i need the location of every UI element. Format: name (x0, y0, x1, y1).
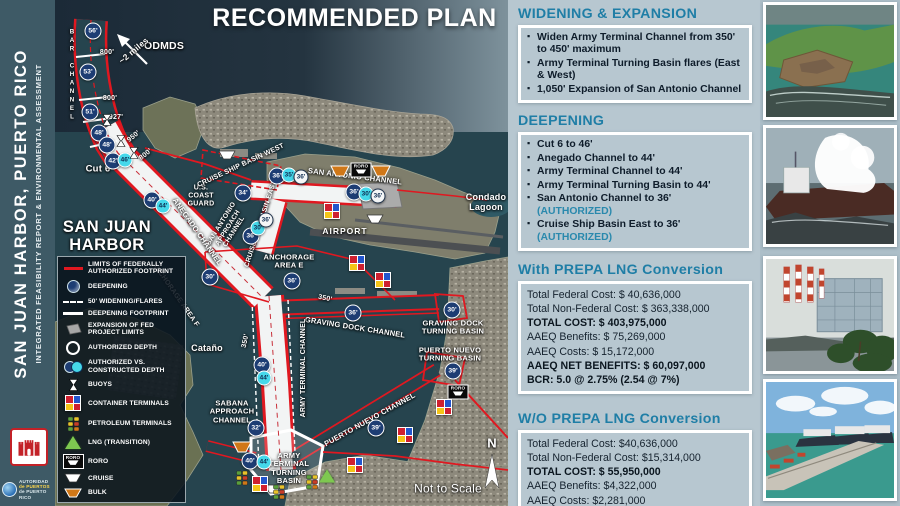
container-terminal-icon (375, 272, 391, 288)
roro-icon: RORO (61, 454, 85, 469)
cost-line: AAEQ Costs: $ 15,172,000 (527, 346, 743, 359)
bullet: Army Terminal Turning Basin flares (East… (527, 58, 743, 83)
cost-line: AAEQ Costs: $2,281,000 (527, 495, 743, 506)
legend-item: BULK (61, 488, 182, 498)
cost-line: AAEQ Benefits: $ 75,269,000 (527, 331, 743, 344)
panel-deepening: Cut 6 to 46' Anegado Channel to 44' Army… (518, 132, 752, 251)
cost-line: Total Federal Cost: $ 40,636,000 (527, 289, 743, 302)
legend-item: DEEPENING FOOTPRINT (61, 310, 182, 317)
cruise-terminal-icon (366, 214, 384, 224)
legend-item: DEEPENING (61, 280, 182, 293)
label-san-juan-harbor: SAN JUAN HARBOR (55, 219, 159, 255)
label-anchorage-area-e: ANCHORAGE AREA E (254, 254, 324, 271)
legend-item: CONTAINER TERMINALS (61, 395, 182, 411)
bullet: Widen Army Terminal Channel from 350' to… (527, 32, 743, 57)
cost-line-total: TOTAL COST: $ 55,950,000 (527, 466, 743, 479)
distance-label: 800' (100, 49, 114, 57)
legend-item: 50' WIDENING/FLARES (61, 298, 182, 305)
legend-item: EXPANSION OF FED PROJECT LIMITS (61, 322, 182, 337)
depth-marker: 39' (445, 363, 462, 380)
roro-terminal-icon: RORO (351, 163, 372, 178)
legend-item: AUTHORIZED VS. CONSTRUCTED DEPTH (61, 359, 182, 374)
legend-item: AUTHORIZED DEPTH (61, 341, 182, 355)
cost-line: Total Federal Cost: $40,636,000 (527, 438, 743, 451)
lng-transition-icon (319, 470, 335, 483)
cost-line: Total Non-Federal Cost: $15,314,000 (527, 452, 743, 465)
panel-title-without-prepa: W/O PREPA LNG Conversion (518, 411, 752, 427)
container-terminal-icon (347, 457, 363, 473)
depth-marker: 36' (284, 273, 301, 290)
photo-cruise-port (763, 379, 897, 501)
petroleum-terminal-icon (273, 484, 286, 500)
petroleum-icon (61, 416, 85, 432)
sidebar: SAN JUAN HARBOR, PUERTO RICO INTEGRATED … (0, 0, 57, 506)
slide: SAN JUAN HARBOR, PUERTO RICO INTEGRATED … (0, 0, 900, 506)
container-terminal-icon (436, 399, 452, 415)
usace-castle-logo (10, 428, 48, 466)
bullet: Army Terminal Channel to 44' (527, 166, 743, 178)
label-puerto-nuevo-turning-basin: PUERTO NUEVO TURNING BASIN (408, 347, 492, 364)
depth-marker: 51' (82, 104, 99, 121)
label-north: N (487, 437, 497, 452)
sidebar-vertical-text: SAN JUAN HARBOR, PUERTO RICO INTEGRATED … (0, 4, 55, 424)
bulk-terminal-icon (330, 165, 350, 177)
harbor-map: RECOMMENDED PLAN BAR CHANNEL ODMDS ~2 mi… (55, 0, 508, 506)
dashed-line-icon (61, 301, 85, 303)
bullet: Anegado Channel to 44' (527, 153, 743, 165)
bullet: Cut 6 to 46' (527, 139, 743, 151)
label-catano: Cataño (191, 343, 223, 353)
dual-circle-icon (61, 361, 85, 372)
solid-line-icon (61, 312, 85, 315)
cruise-icon (61, 473, 85, 483)
circle-outline-icon (61, 341, 85, 355)
panel-with-prepa: Total Federal Cost: $ 40,636,000 Total N… (518, 281, 752, 394)
label-army-terminal-channel: ARMY TERMINAL CHANNEL (300, 319, 308, 418)
legend-item: LNG (TRANSITION) (61, 436, 182, 449)
cost-line-net-benefits: AAEQ NET BENEFITS: $ 60,097,000 (527, 360, 743, 373)
legend-item: CRUISE (61, 473, 182, 483)
panel-title-widening: WIDENING & EXPANSION (518, 6, 752, 22)
depth-marker: 36' (259, 213, 274, 228)
map-legend: LIMITS OF FEDERALLY AUTHORIZED FOOTPRINT… (57, 256, 186, 503)
depth-marker: 36' (371, 189, 386, 204)
label-condado-lagoon: Condado Lagoon (459, 192, 508, 212)
depth-marker: 48' (99, 137, 116, 154)
map-title: RECOMMENDED PLAN (205, 4, 504, 33)
label-bar-channel: BAR CHANNEL (68, 28, 75, 122)
cost-line-total: TOTAL COST: $ 403,975,000 (527, 317, 743, 330)
depth-marker: 34' (235, 185, 252, 202)
cost-line: AAEQ Benefits: $4,322,000 (527, 480, 743, 493)
gray-area-icon (61, 323, 85, 335)
photo-el-morro (763, 2, 897, 120)
petroleum-terminal-icon (306, 474, 319, 490)
report-subtitle: INTEGRATED FEASIBILITY REPORT & ENVIRONM… (34, 64, 43, 364)
panel-title-with-prepa: With PREPA LNG Conversion (518, 262, 752, 278)
depth-marker: 32' (248, 420, 265, 437)
legend-item: RORORORO (61, 454, 182, 469)
depth-marker: 56' (85, 23, 102, 40)
castle-icon (15, 433, 43, 461)
red-line-icon (61, 267, 85, 271)
distance-label: 800' (103, 95, 117, 103)
depth-marker: 44' (156, 199, 171, 214)
cruise-terminal-icon (218, 150, 236, 160)
buoy-icon (61, 379, 85, 391)
bulk-icon (61, 488, 85, 498)
bullet: San Antonio Channel to 36'(AUTHORIZED) (527, 193, 743, 218)
label-airport: AIRPORT (322, 227, 367, 237)
label-graving-dock-turning-basin: GRAVING DOCK TURNING BASIN (411, 320, 495, 337)
container-terminal-icon (349, 255, 365, 271)
legend-item: LIMITS OF FEDERALLY AUTHORIZED FOOTPRINT (61, 261, 182, 276)
photo-power-plant (763, 256, 897, 374)
depth-marker: 53' (80, 64, 97, 81)
panel-widening: Widen Army Terminal Channel from 350' to… (518, 25, 752, 103)
bullet: Cruise Ship Basin East to 36'(AUTHORIZED… (527, 219, 743, 244)
roro-terminal-icon: RORO (448, 385, 469, 400)
container-terminal-icon (397, 427, 413, 443)
ports-logo-line3: de PUERTO RICO (19, 489, 53, 500)
lng-triangle-icon (61, 436, 85, 449)
container-icon (61, 395, 85, 411)
legend-item: BUOYS (61, 379, 182, 391)
panel-without-prepa: Total Federal Cost: $40,636,000 Total No… (518, 430, 752, 506)
photo-column (760, 0, 900, 506)
panel-title-deepening: DEEPENING (518, 113, 752, 129)
container-terminal-icon (324, 203, 340, 219)
bulk-terminal-icon (232, 441, 252, 453)
photo-ship-wave (763, 125, 897, 247)
bullet: Army Terminal Turning Basin to 44' (527, 180, 743, 192)
depth-marker: 36' (345, 305, 362, 322)
legend-item: PETROLEUM TERMINALS (61, 416, 182, 432)
buoy-icon (117, 135, 126, 147)
petroleum-terminal-icon (236, 470, 249, 486)
label-not-to-scale: Not to Scale (414, 482, 482, 495)
depth-marker: 30' (444, 302, 461, 319)
globe-icon (2, 482, 17, 497)
ports-authority-logo: AUTORIDAD de PUERTOS de PUERTO RICO (2, 479, 53, 500)
depth-marker: 36' (294, 170, 309, 185)
deepening-circle-icon (61, 280, 85, 293)
bulk-terminal-icon (371, 165, 391, 177)
report-title: SAN JUAN HARBOR, PUERTO RICO (12, 49, 31, 379)
cost-line-bcr: BCR: 5.0 @ 2.75% (2.54 @ 7%) (527, 374, 743, 387)
depth-marker: 44' (257, 371, 272, 386)
info-panels: WIDENING & EXPANSION Widen Army Terminal… (508, 0, 760, 506)
depth-marker: 39' (368, 420, 385, 437)
buoy-icon (130, 147, 139, 159)
container-terminal-icon (252, 476, 268, 492)
buoy-icon (103, 114, 112, 126)
bullet: 1,050' Expansion of San Antonio Channel (527, 84, 743, 96)
depth-marker: 44' (257, 455, 272, 470)
depth-marker: 30' (202, 269, 219, 286)
cost-line: Total Non-Federal Cost: $ 363,338,000 (527, 303, 743, 316)
